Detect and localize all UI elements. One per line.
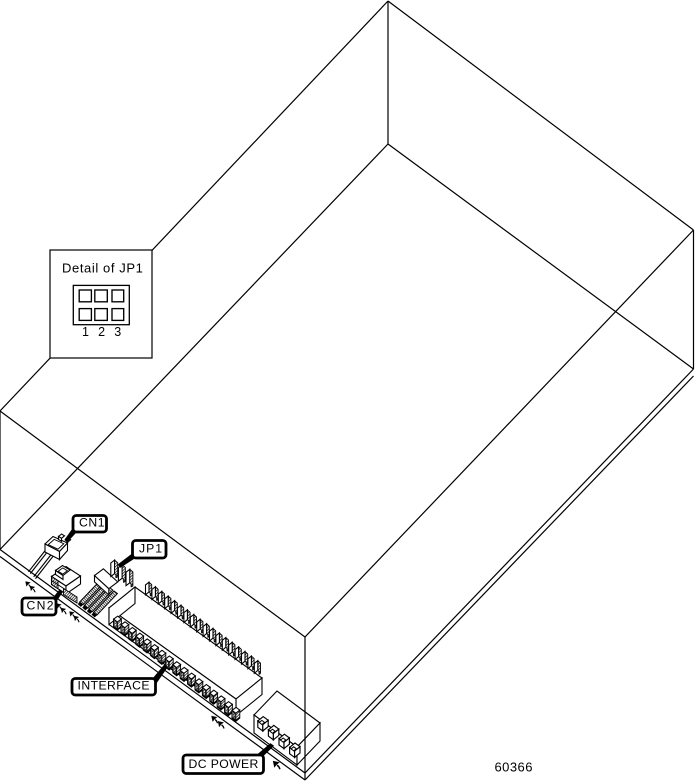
svg-text:INTERFACE: INTERFACE: [78, 679, 150, 693]
svg-text:JP1: JP1: [139, 542, 163, 556]
svg-text:CN1: CN1: [79, 516, 105, 530]
svg-text:60366: 60366: [495, 760, 533, 775]
svg-text:DC POWER: DC POWER: [189, 757, 259, 771]
svg-text:Detail of JP1: Detail of JP1: [62, 261, 144, 276]
svg-text:CN2: CN2: [27, 599, 55, 613]
svg-text:123: 123: [82, 325, 130, 339]
